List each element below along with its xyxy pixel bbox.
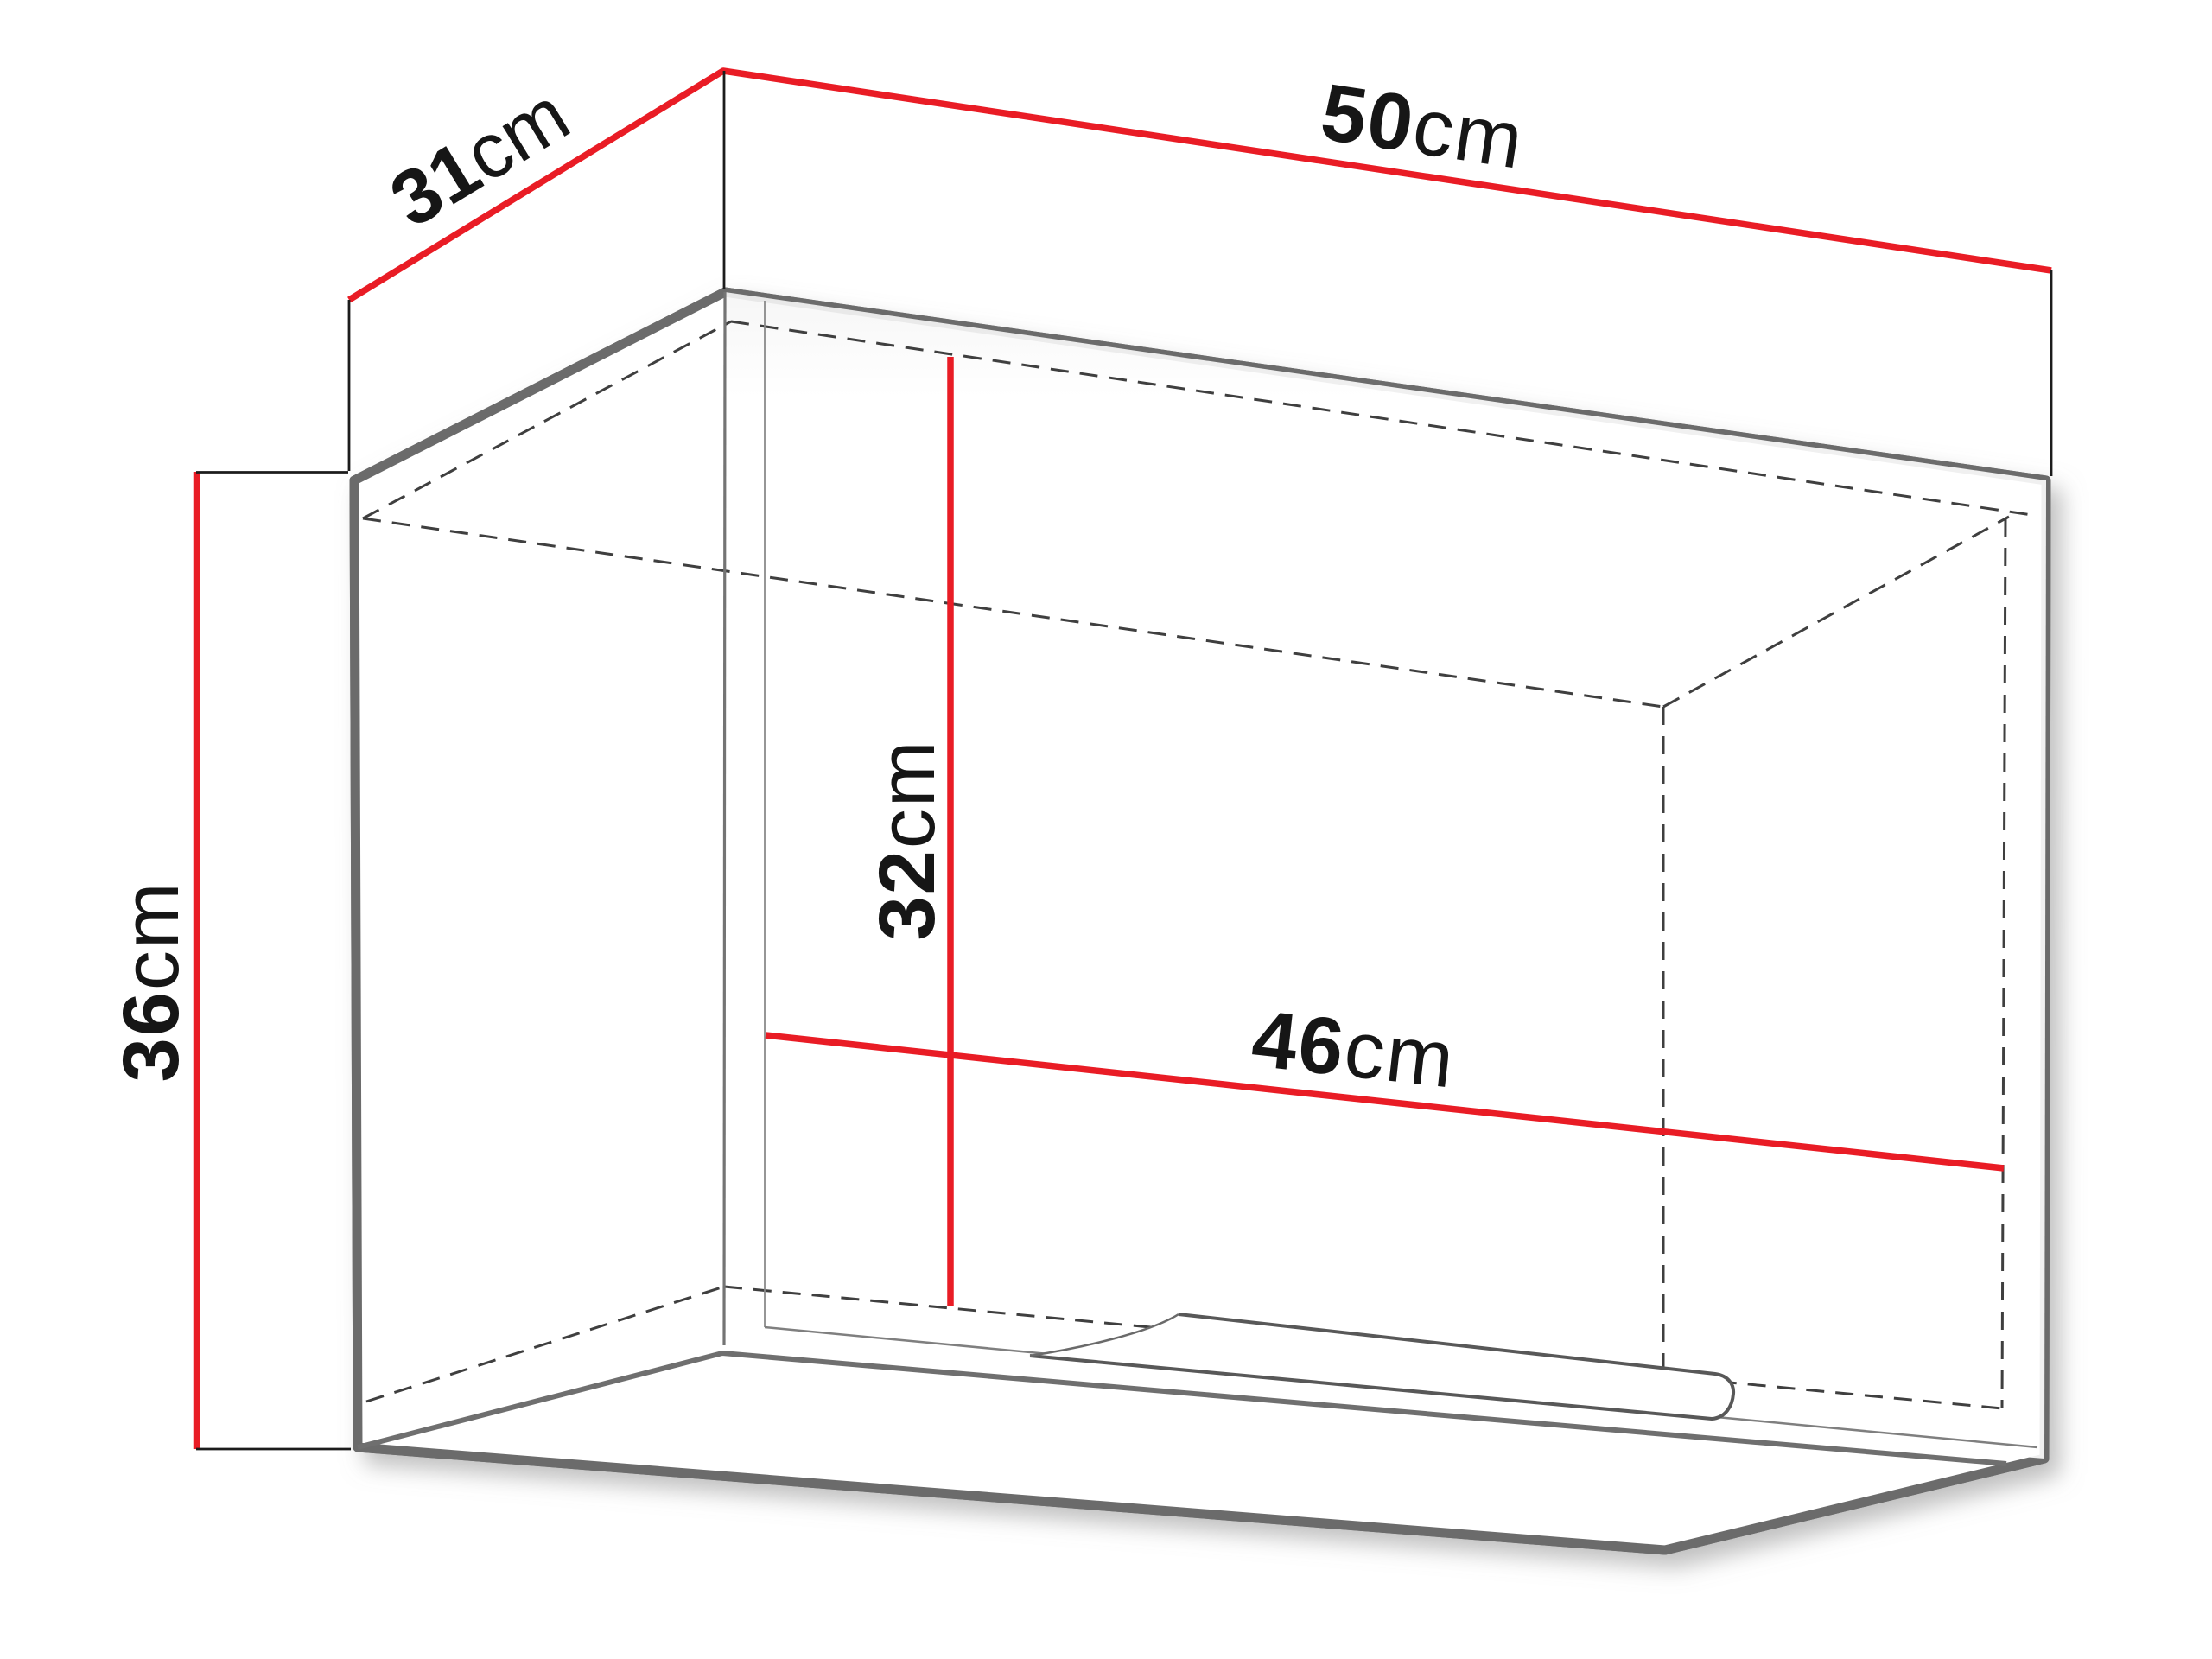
svg-text:32cm: 32cm <box>863 740 951 941</box>
svg-text:36cm: 36cm <box>107 881 195 1083</box>
